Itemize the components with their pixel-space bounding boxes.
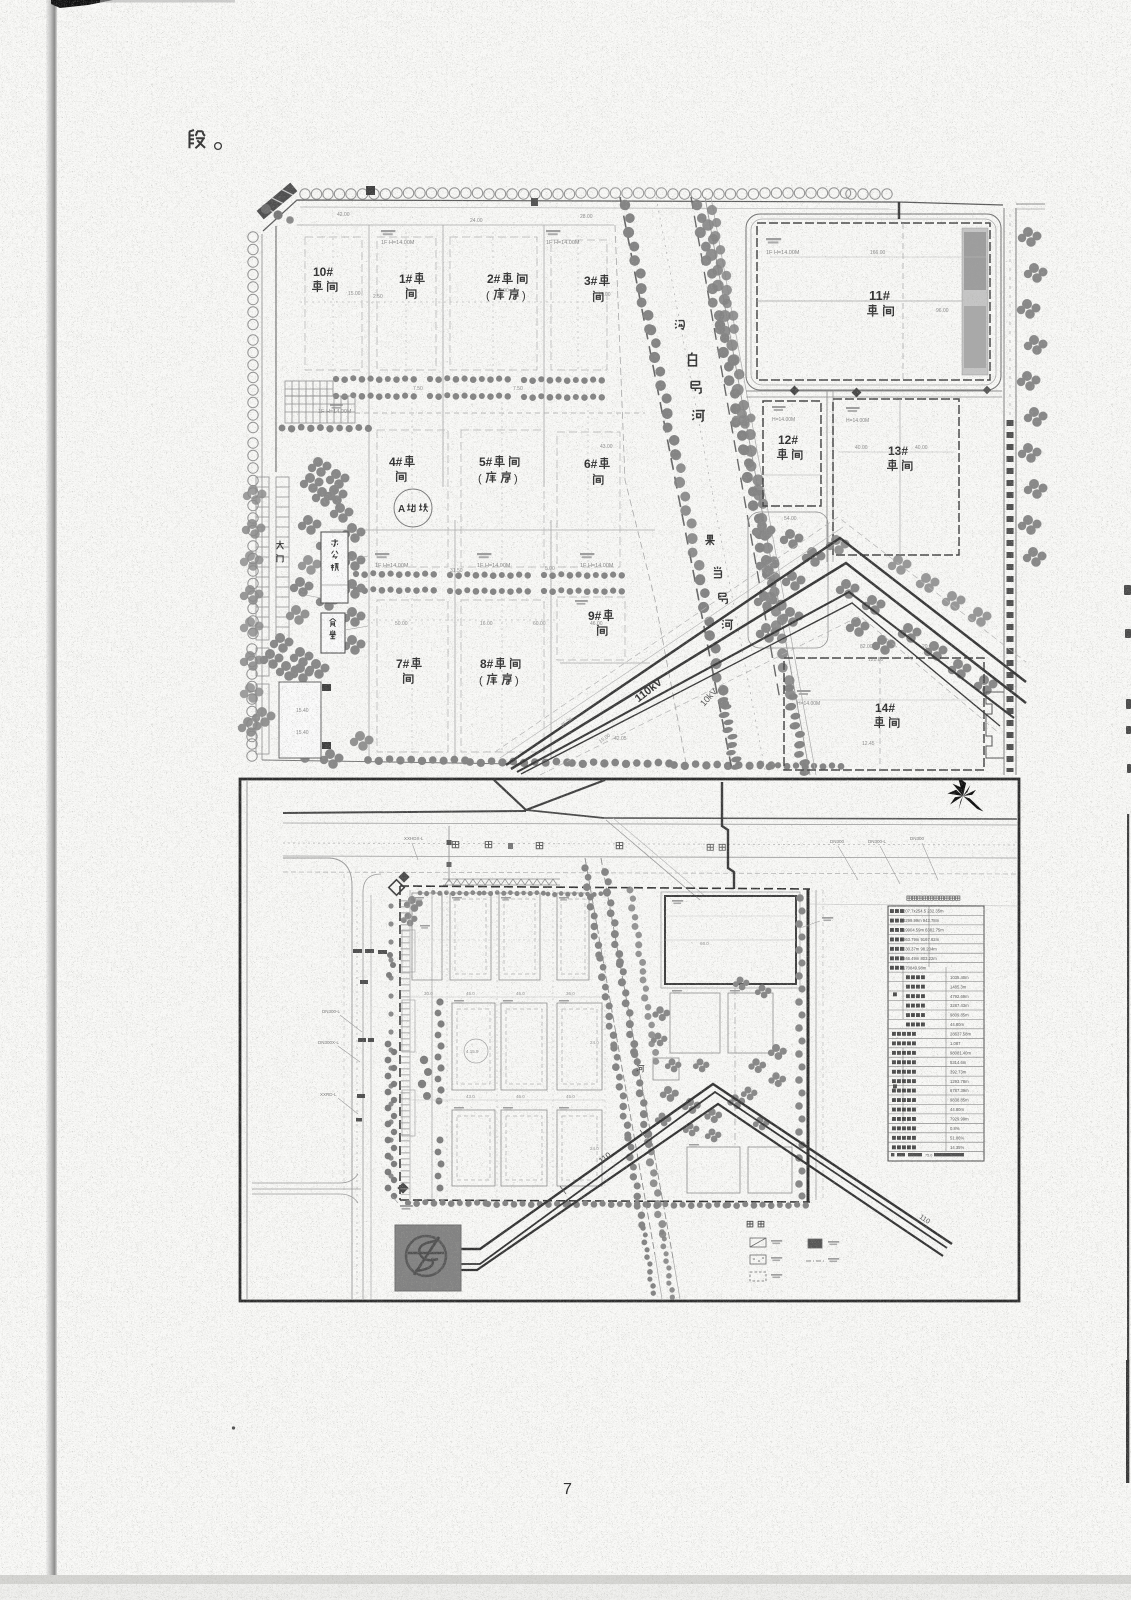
svg-text:7: 7 [563, 1481, 572, 1498]
